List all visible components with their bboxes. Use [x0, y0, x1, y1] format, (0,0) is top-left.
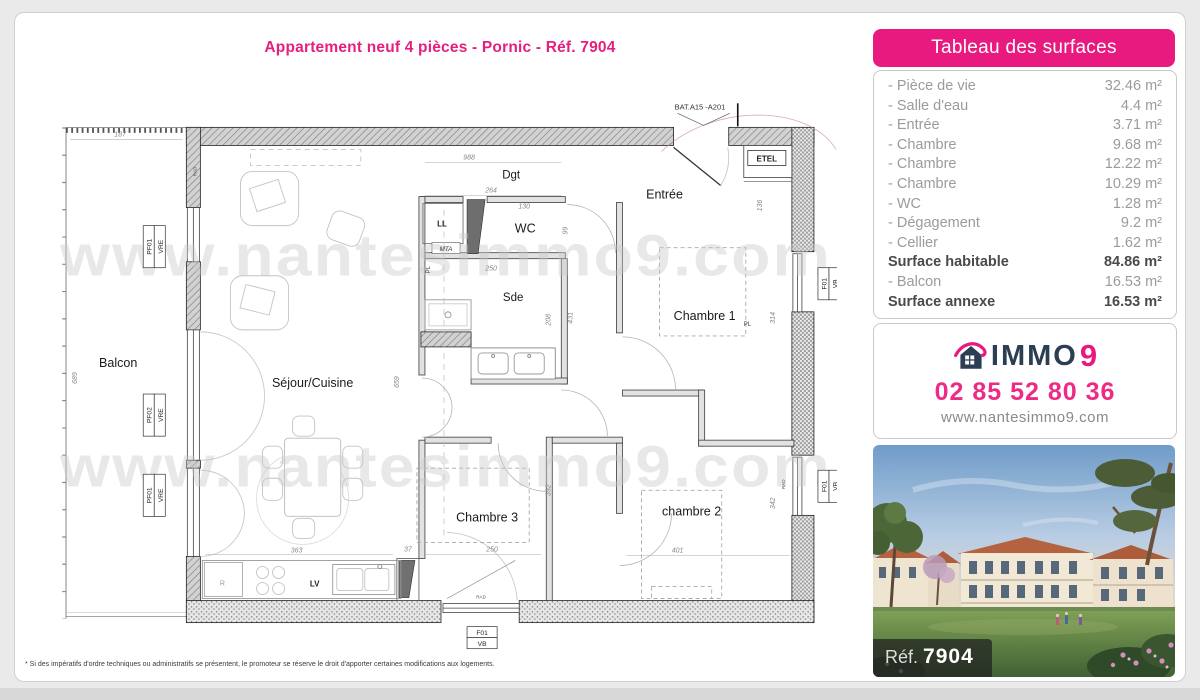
surface-row: - Pièce de vie32.46 m² [888, 77, 1162, 97]
website-link[interactable]: www.nantesimmo9.com [874, 409, 1176, 426]
watermark-bottom: www.nantesimmo9.com [59, 434, 832, 499]
window-label-pf01-bottom: PF01 VRE [143, 474, 165, 516]
fridge-label: R [220, 581, 225, 588]
page-card: Appartement neuf 4 pièces - Pornic - Réf… [14, 12, 1186, 682]
room-label-chambre1: Chambre 1 [674, 309, 736, 323]
rad-label-3: RAD [476, 595, 486, 600]
surfaces-panel: - Pièce de vie32.46 m² - Salle d'eau4.4 … [873, 70, 1177, 319]
svg-text:VB: VB [833, 481, 837, 490]
surface-total-annexe: Surface annexe16.53 m² [888, 293, 1162, 313]
dim-sde-w: 250 [484, 266, 497, 273]
balcony-structure [64, 127, 186, 618]
dim-sde-h2: 431 [567, 312, 574, 324]
dim-ch2-w: 401 [672, 547, 684, 554]
dim-sde-h: 208 [545, 314, 552, 327]
ref-number: 7904 [923, 645, 974, 668]
window-label-f01-right1: F01 VB [818, 268, 837, 300]
photo-ref-badge: Réf. 7904 [873, 639, 992, 677]
dim-ch3-w: 250 [485, 546, 498, 553]
dim-hall-w: 988 [463, 154, 475, 161]
window-label-pf02: PF02 VRE [143, 394, 165, 436]
rad-label-1: RAD [192, 166, 197, 176]
window-label-f01-right2: F01 VB [818, 470, 837, 502]
room-label-chambre3: Chambre 3 [456, 510, 518, 524]
svg-text:PF01: PF01 [147, 238, 154, 254]
svg-text:PF01: PF01 [147, 487, 154, 503]
contact-card: IMMO9 02 85 52 80 36 www.nantesimmo9.com [873, 323, 1177, 439]
svg-text:PF02: PF02 [147, 407, 154, 423]
brand-9-text: 9 [1080, 338, 1097, 374]
chambre1-pl-label: PL [744, 322, 752, 328]
window-label-f01-bottom: F01 VB [467, 627, 497, 649]
surface-row: - Dégagement9.2 m² [888, 214, 1162, 234]
surface-row: - Entrée3.71 m² [888, 116, 1162, 136]
pl-label: PL [426, 265, 432, 273]
brand-immo-text: IMMO [991, 340, 1078, 373]
dim-etel-h: 136 [757, 200, 764, 212]
beds [417, 248, 746, 599]
floor-plan: www.nantesimmo9.com www.nantesimmo9.com … [55, 97, 837, 657]
surface-row: - WC1.28 m² [888, 195, 1162, 215]
window-label-pf01-top: PF01 VRE [143, 226, 165, 268]
svg-text:F01: F01 [821, 480, 828, 492]
etel-label: ETEL [757, 154, 778, 163]
surface-row: - Chambre12.22 m² [888, 155, 1162, 175]
surfaces-panel-header: Tableau des surfaces [873, 29, 1175, 67]
dim-ch1-h: 314 [770, 312, 777, 324]
sde-hatched-wall [421, 332, 471, 347]
svg-text:VB: VB [478, 641, 487, 648]
surface-row: - Balcon16.53 m² [888, 273, 1162, 293]
property-photo: Réf. 7904 [873, 445, 1175, 677]
rad-label-2: RAD [781, 479, 786, 489]
room-label-wc: WC [515, 222, 536, 236]
dim-kitchen-w: 363 [291, 547, 303, 554]
watermark-top: www.nantesimmo9.com [59, 224, 832, 289]
dim-ch2-h: 342 [770, 497, 777, 509]
dim-gap-w: 37 [404, 546, 413, 553]
svg-text:VB: VB [833, 279, 837, 288]
surface-row: - Chambre10.29 m² [888, 175, 1162, 195]
svg-text:F01: F01 [821, 278, 828, 290]
svg-text:VRE: VRE [158, 488, 165, 502]
ll-label: LL [437, 220, 447, 229]
surface-row: - Salle d'eau4.4 m² [888, 97, 1162, 117]
bottom-strip [0, 688, 1200, 700]
page-title: Appartement neuf 4 pièces - Pornic - Réf… [15, 39, 865, 57]
brand-logo: IMMO9 [874, 338, 1176, 374]
mta-label: MTA [440, 246, 453, 253]
room-label-sde: Sde [503, 292, 523, 304]
window-leaf [447, 560, 515, 598]
surface-total-habitable: Surface habitable84.86 m² [888, 253, 1162, 273]
surface-row: - Chambre9.68 m² [888, 136, 1162, 156]
surface-row: - Cellier1.62 m² [888, 234, 1162, 254]
dim-ch3-h: 392 [545, 484, 552, 496]
unit-ref-label: BAT.A15 -A201 [675, 102, 726, 111]
room-label-balcon: Balcon [99, 356, 137, 370]
svg-text:VRE: VRE [158, 239, 165, 253]
dim-wc-w: 130 [518, 204, 530, 211]
house-logo-icon [953, 339, 989, 373]
room-label-entree: Entrée [646, 188, 683, 202]
svg-text:VRE: VRE [158, 408, 165, 422]
room-label-chambre2: chambre 2 [662, 504, 721, 518]
room-label-dgt: Dgt [502, 169, 521, 181]
footnote: * Si des impératifs d'ordre techniques o… [25, 661, 495, 668]
phone-number[interactable]: 02 85 52 80 36 [874, 378, 1176, 407]
dishwasher-label: LV [310, 580, 320, 589]
ref-label: Réf. [885, 647, 918, 667]
floor-plan-svg: www.nantesimmo9.com www.nantesimmo9.com … [55, 97, 837, 657]
furniture [202, 149, 555, 598]
dim-dgt-w: 264 [484, 188, 497, 195]
room-label-sejour: Séjour/Cuisine [272, 376, 353, 390]
dim-wc-h: 99 [562, 227, 569, 235]
dim-balcon-h: 689 [72, 372, 79, 384]
dim-sejour-h: 659 [394, 376, 401, 388]
dim-balcon-w: 187 [114, 131, 127, 138]
svg-text:F01: F01 [476, 630, 488, 637]
